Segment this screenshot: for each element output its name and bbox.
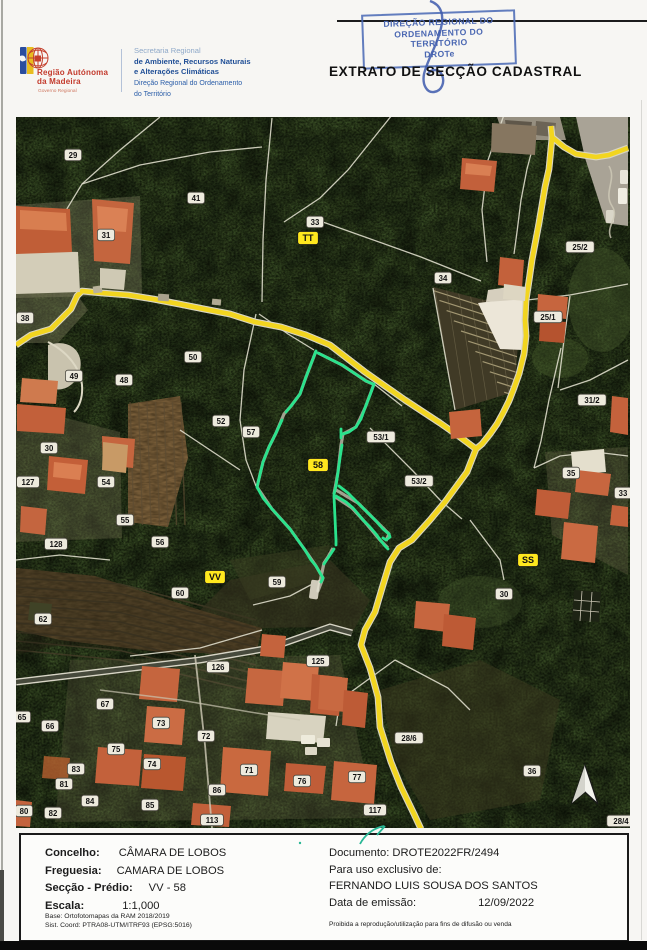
svg-text:50: 50 — [189, 353, 198, 362]
svg-text:53/2: 53/2 — [411, 477, 427, 486]
svg-text:82: 82 — [49, 809, 58, 818]
svg-text:41: 41 — [192, 194, 201, 203]
svg-text:85: 85 — [146, 801, 155, 810]
svg-text:84: 84 — [86, 797, 95, 806]
svg-text:33: 33 — [619, 489, 628, 498]
svg-text:57: 57 — [247, 428, 256, 437]
svg-text:VV: VV — [209, 572, 221, 582]
svg-text:80: 80 — [20, 807, 29, 816]
svg-text:33: 33 — [311, 218, 320, 227]
svg-text:128: 128 — [49, 540, 63, 549]
svg-text:76: 76 — [298, 777, 307, 786]
svg-text:60: 60 — [176, 589, 185, 598]
svg-text:81: 81 — [60, 780, 69, 789]
svg-text:29: 29 — [69, 151, 78, 160]
svg-text:65: 65 — [18, 713, 27, 722]
svg-text:34: 34 — [439, 274, 448, 283]
svg-text:125: 125 — [311, 657, 325, 666]
svg-text:31/2: 31/2 — [584, 396, 600, 405]
svg-text:35: 35 — [567, 469, 576, 478]
svg-text:30: 30 — [45, 444, 54, 453]
svg-text:127: 127 — [21, 478, 34, 487]
svg-text:38: 38 — [21, 314, 30, 323]
svg-text:53/1: 53/1 — [373, 433, 389, 442]
svg-text:113: 113 — [206, 816, 219, 825]
svg-text:SS: SS — [522, 555, 534, 565]
svg-text:48: 48 — [120, 376, 129, 385]
svg-text:25/2: 25/2 — [572, 243, 588, 252]
svg-text:117: 117 — [369, 806, 382, 815]
svg-text:62: 62 — [39, 615, 48, 624]
svg-text:28/4: 28/4 — [613, 817, 629, 826]
svg-text:73: 73 — [157, 719, 166, 728]
svg-text:74: 74 — [148, 760, 157, 769]
svg-text:66: 66 — [46, 722, 55, 731]
svg-text:TT: TT — [303, 233, 314, 243]
svg-text:59: 59 — [273, 578, 282, 587]
svg-text:25/1: 25/1 — [540, 313, 556, 322]
svg-text:83: 83 — [72, 765, 81, 774]
svg-text:86: 86 — [213, 786, 222, 795]
svg-text:58: 58 — [313, 460, 323, 470]
svg-text:30: 30 — [500, 590, 509, 599]
svg-text:56: 56 — [156, 538, 165, 547]
svg-text:54: 54 — [102, 478, 111, 487]
svg-text:28/6: 28/6 — [401, 734, 417, 743]
svg-text:67: 67 — [101, 700, 110, 709]
svg-text:77: 77 — [353, 773, 362, 782]
svg-text:52: 52 — [217, 417, 226, 426]
svg-text:72: 72 — [202, 732, 211, 741]
svg-text:36: 36 — [528, 767, 537, 776]
svg-text:49: 49 — [70, 372, 79, 381]
svg-text:31: 31 — [102, 231, 111, 240]
svg-text:71: 71 — [245, 766, 254, 775]
svg-text:126: 126 — [211, 663, 225, 672]
svg-text:55: 55 — [121, 516, 130, 525]
svg-text:75: 75 — [112, 745, 121, 754]
